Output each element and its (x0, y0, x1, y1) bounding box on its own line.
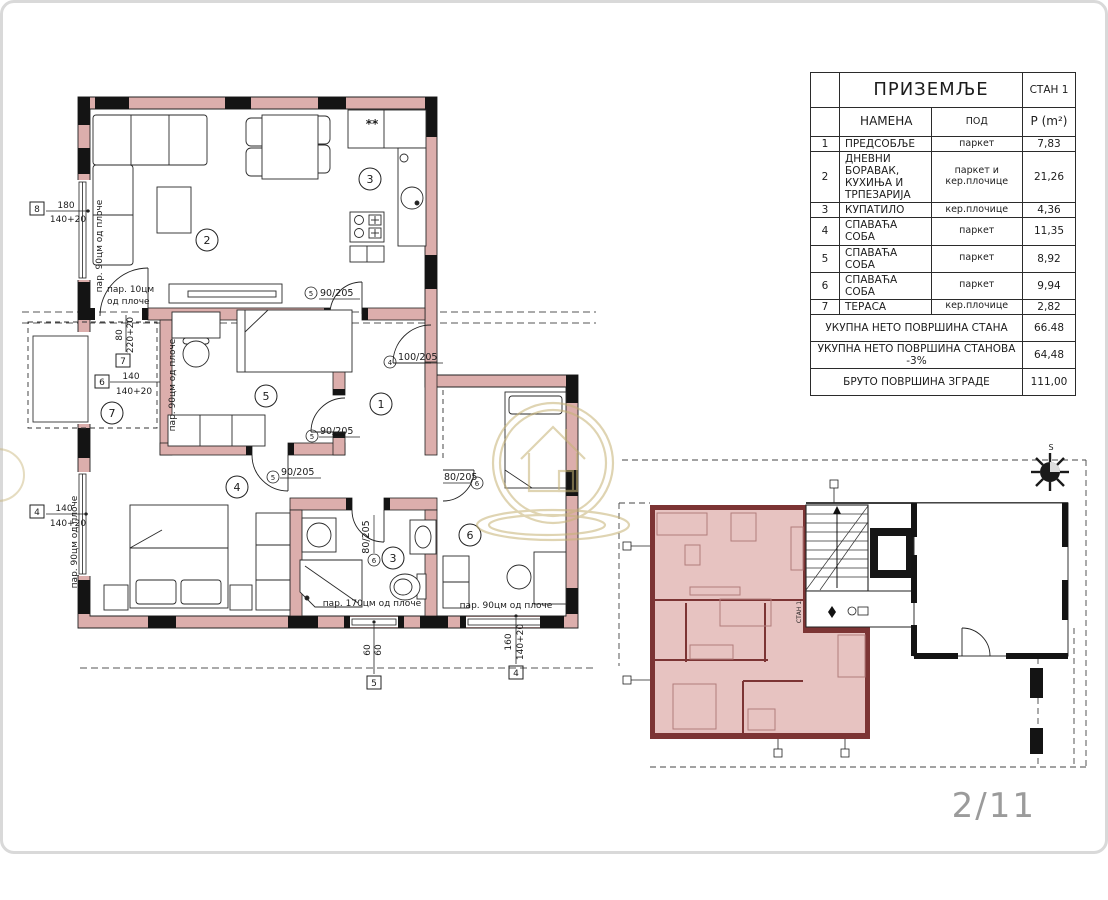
room-number: 4 (234, 481, 241, 494)
door-size: 80/205 (361, 520, 372, 553)
row-name: ПРЕДСОБЉЕ (840, 137, 932, 152)
row-area: 9,94 (1023, 272, 1076, 299)
summary-row: УКУПНА НЕТО ПОВРШИНА СТАНОВА -3% 64,48 (811, 341, 1076, 368)
table-row: 5 СПАВАЋА СОБА паркет 8,92 (811, 245, 1076, 272)
room-number: 1 (378, 398, 385, 411)
parapet-label: пар. 90цм од плоче (460, 601, 553, 611)
table-row: 7 ТЕРАСА кер.плочице 2,82 (811, 299, 1076, 314)
row-area: 21,26 (1023, 152, 1076, 203)
parapet-label: пар. 90цм од плоче (168, 338, 178, 431)
dim-id: 5 (371, 679, 377, 689)
parapet-label: пар. 90цм од плоче (70, 495, 80, 588)
compass-icon: S (1031, 443, 1069, 491)
row-num: 6 (811, 272, 840, 299)
row-area: 7,83 (1023, 137, 1076, 152)
row-name: СПАВАЋА СОБА (840, 272, 932, 299)
table-row: 6 СПАВАЋА СОБА паркет 9,94 (811, 272, 1076, 299)
row-floor: кер.плочице (931, 299, 1023, 314)
page-number: 2/11 (952, 786, 1036, 826)
summary-label: УКУПНА НЕТО ПОВРШИНА СТАНА (811, 314, 1023, 341)
summary-label: БРУТО ПОВРШИНА ЗГРАДЕ (811, 368, 1023, 395)
door-mark: 5 (310, 433, 314, 441)
door-size: 100/205 (398, 352, 437, 363)
compass-north-label: S (1048, 443, 1053, 452)
dim-a: 80 (115, 329, 125, 341)
room-number: 3 (367, 173, 374, 186)
parapet-label: пар. 170цм од плоче (323, 599, 422, 609)
dim-a: 60 (363, 644, 373, 656)
summary-row: УКУПНА НЕТО ПОВРШИНА СТАНА 66.48 (811, 314, 1076, 341)
row-floor: паркет (931, 272, 1023, 299)
summary-row: БРУТО ПОВРШИНА ЗГРАДЕ 111,00 (811, 368, 1076, 395)
room-number: 6 (467, 529, 474, 542)
dim-a: 160 (504, 633, 514, 650)
row-floor: кер.плочице (931, 203, 1023, 218)
row-name: ТЕРАСА (840, 299, 932, 314)
door-size: 80/205 (444, 472, 477, 483)
row-area: 8,92 (1023, 245, 1076, 272)
row-name: СПАВАЋА СОБА (840, 245, 932, 272)
row-name: ДНЕВНИ БОРАВАК, КУХИЊА И ТРПЕЗАРИЈА (840, 152, 932, 203)
row-num: 2 (811, 152, 840, 203)
door-mark: 6 (372, 557, 377, 565)
row-num: 4 (811, 218, 840, 245)
row-name: СПАВАЋА СОБА (840, 218, 932, 245)
parapet-label: пар. 90цм од плоче (95, 199, 105, 292)
door-mark: 5 (271, 474, 275, 482)
row-num: 1 (811, 137, 840, 152)
row-floor: паркет и кер.плочице (931, 152, 1023, 203)
row-num: 5 (811, 245, 840, 272)
site-unit-label: СТАН 1 (796, 601, 803, 623)
dim-b: 220+20 (126, 317, 136, 353)
summary-label: УКУПНА НЕТО ПОВРШИНА СТАНОВА -3% (811, 341, 1023, 368)
room-number: 7 (109, 407, 116, 420)
dim-b: 140+20 (516, 624, 526, 660)
col-header-name: НАМЕНА (840, 108, 932, 137)
door-mark: 5 (309, 290, 313, 298)
row-area: 2,82 (1023, 299, 1076, 314)
row-num: 3 (811, 203, 840, 218)
dim-id: 7 (120, 357, 126, 367)
dim-id: 4 (513, 669, 519, 679)
row-name: КУПАТИЛО (840, 203, 932, 218)
parapet-label: пар. 10цм (107, 285, 154, 295)
dim-b: 60 (374, 644, 384, 656)
door-mark: 6 (475, 480, 480, 488)
room-number: 5 (263, 390, 270, 403)
dim-id: 8 (34, 205, 40, 215)
col-header-floor: ПОД (931, 108, 1023, 137)
dim-id: 4 (34, 508, 40, 518)
parapet-label: од плоче (107, 297, 150, 307)
unit-label: СТАН 1 (1023, 73, 1076, 108)
dim-b: 140+20 (50, 215, 86, 225)
row-floor: паркет (931, 245, 1023, 272)
table-row: 2 ДНЕВНИ БОРАВАК, КУХИЊА И ТРПЕЗАРИЈА па… (811, 152, 1076, 203)
kitchen-note: ** (366, 117, 379, 131)
table-row: 4 СПАВАЋА СОБА паркет 11,35 (811, 218, 1076, 245)
summary-value: 64,48 (1023, 341, 1076, 368)
door-mark: 4 (388, 359, 393, 367)
dim-id: 6 (99, 378, 105, 388)
row-area: 4,36 (1023, 203, 1076, 218)
row-floor: паркет (931, 137, 1023, 152)
dim-b: 140+20 (116, 387, 152, 397)
table-row: 3 КУПАТИЛО кер.плочице 4,36 (811, 203, 1076, 218)
door-size: 90/205 (320, 426, 353, 437)
dim-b: 140+20 (50, 519, 86, 529)
summary-value: 111,00 (1023, 368, 1076, 395)
door-size: 90/205 (281, 467, 314, 478)
summary-value: 66.48 (1023, 314, 1076, 341)
dim-a: 140 (122, 372, 139, 382)
row-area: 11,35 (1023, 218, 1076, 245)
col-header-area: Р (m²) (1023, 108, 1076, 137)
row-num: 7 (811, 299, 840, 314)
dim-a: 180 (57, 201, 74, 211)
table-row: 1 ПРЕДСОБЉЕ паркет 7,83 (811, 137, 1076, 152)
door-size: 90/205 (320, 288, 353, 299)
table-title: ПРИЗЕМЉЕ (840, 73, 1023, 108)
area-table: ПРИЗЕМЉЕ СТАН 1 НАМЕНА ПОД Р (m²) 1 ПРЕД… (810, 72, 1076, 396)
site-plan-svg: СТАН 1 S (608, 428, 1100, 780)
neighbour-unit (911, 503, 1068, 754)
room-number: 3 (390, 552, 397, 565)
floor-plan-svg: 1 2 3 3 4 5 6 7 5 90/205 4 100/205 5 90/… (18, 78, 602, 694)
room-number: 2 (204, 234, 211, 247)
row-floor: паркет (931, 218, 1023, 245)
